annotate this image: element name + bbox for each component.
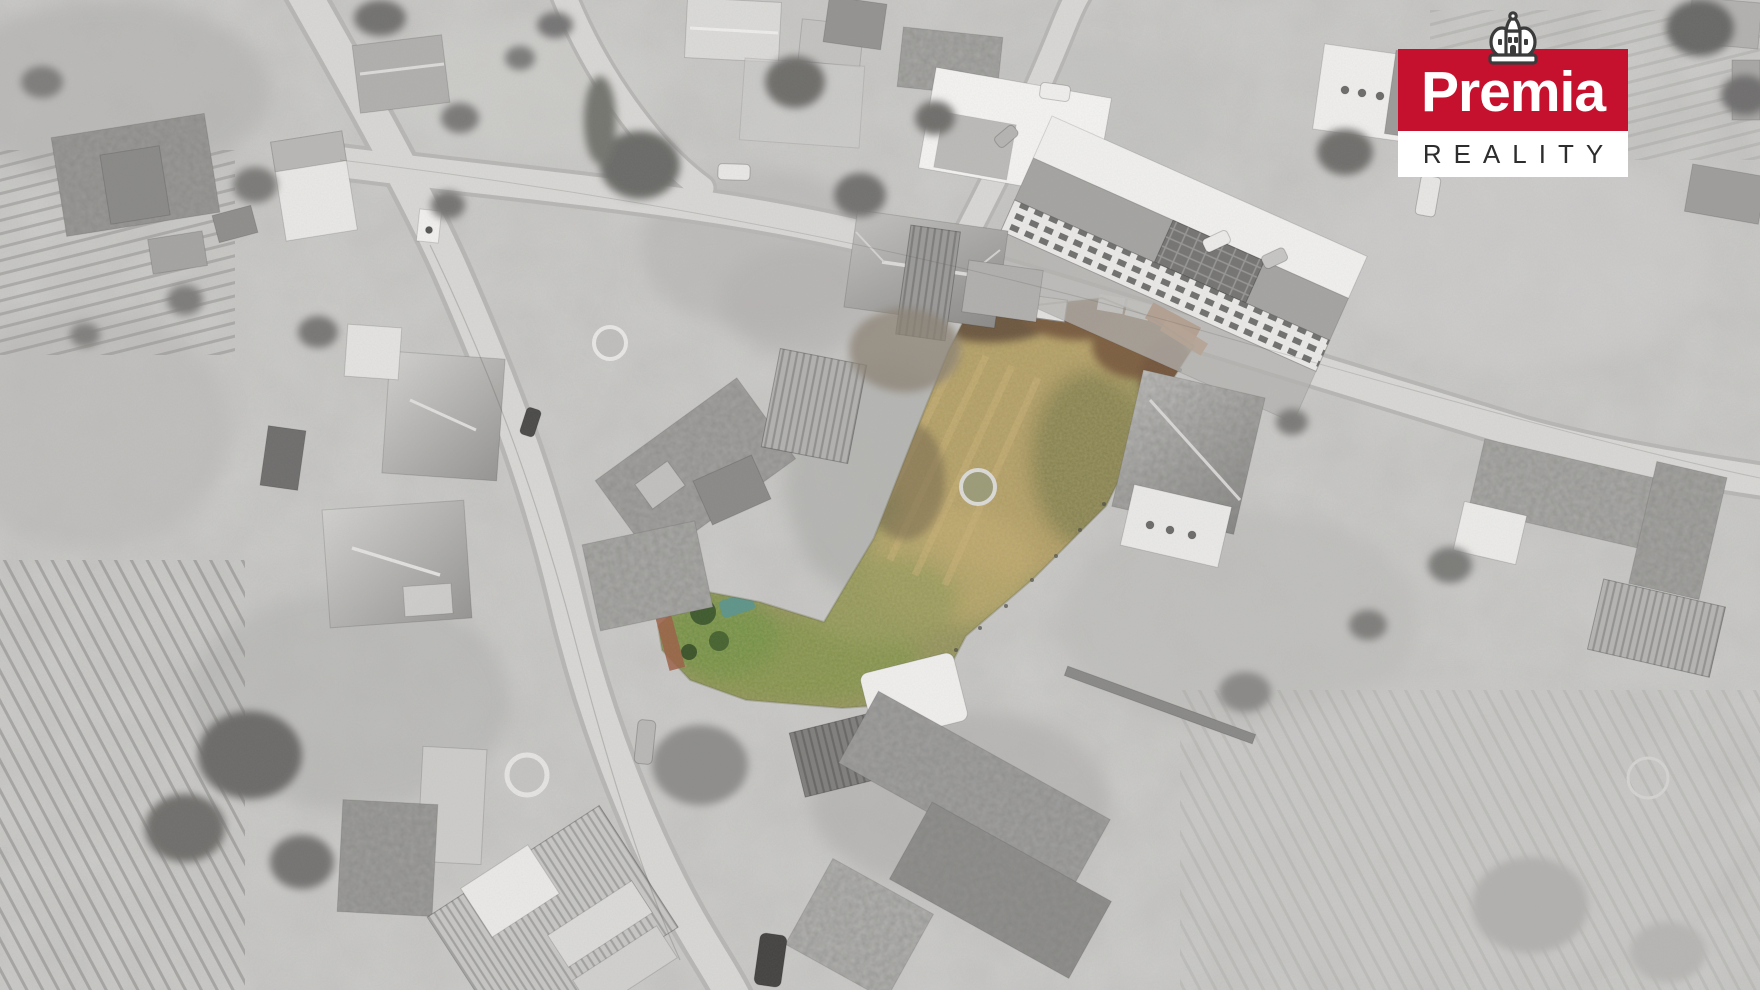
premia-reality-logo: Premia REALITY	[1398, 0, 1628, 178]
logo-subtitle-box: REALITY	[1398, 131, 1628, 177]
listing-photo: Premia REALITY	[0, 0, 1760, 990]
brand-subtitle: REALITY	[1411, 141, 1615, 167]
brand-name: Premia	[1421, 64, 1605, 121]
crown-icon	[1477, 11, 1549, 67]
